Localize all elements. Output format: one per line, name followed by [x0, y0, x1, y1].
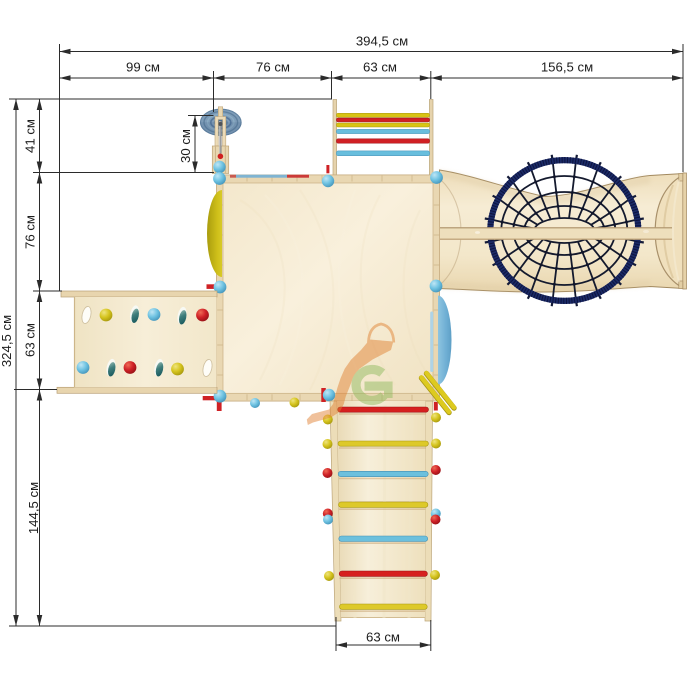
svg-text:41 см: 41 см: [23, 119, 38, 153]
svg-text:76 см: 76 см: [256, 60, 290, 75]
svg-text:63 см: 63 см: [363, 60, 397, 75]
svg-text:324,5 см: 324,5 см: [0, 315, 14, 367]
svg-text:144,5 см: 144,5 см: [26, 482, 41, 534]
svg-text:76 см: 76 см: [23, 215, 38, 249]
svg-text:63 см: 63 см: [366, 630, 400, 645]
svg-text:30 см: 30 см: [178, 129, 193, 163]
svg-text:394,5 см: 394,5 см: [356, 34, 408, 49]
svg-text:156,5 см: 156,5 см: [541, 60, 593, 75]
svg-text:99 см: 99 см: [126, 60, 160, 75]
svg-text:63 см: 63 см: [23, 323, 38, 357]
